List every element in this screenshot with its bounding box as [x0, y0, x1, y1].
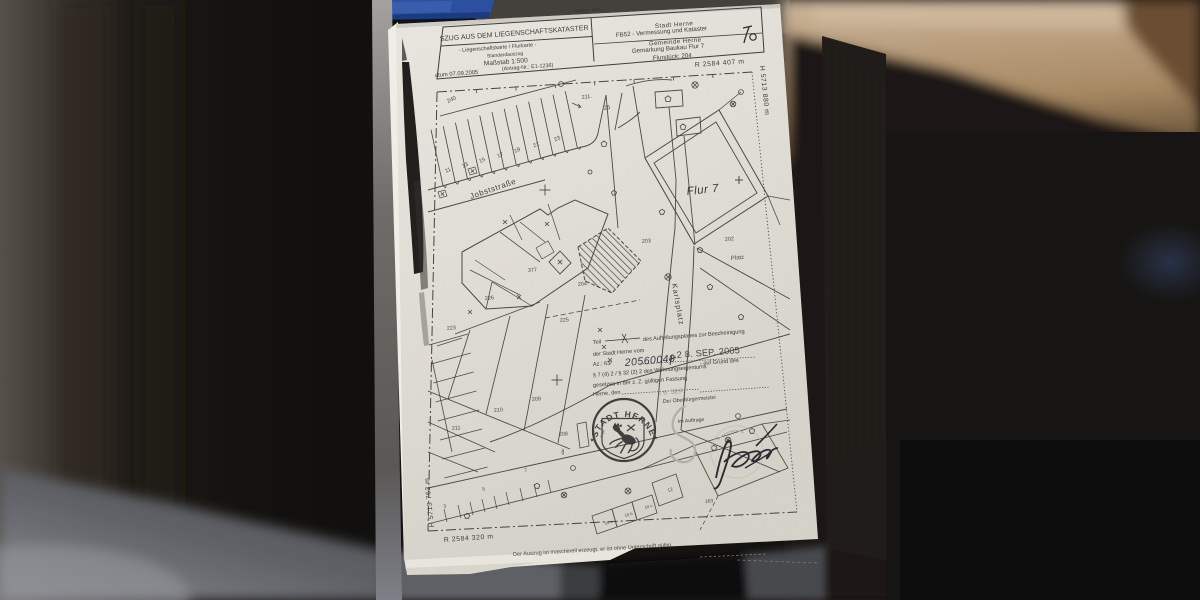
svg-text:223: 223	[447, 325, 456, 332]
svg-text:209: 209	[532, 396, 541, 403]
svg-text:202: 202	[725, 236, 734, 243]
svg-text:225: 225	[560, 317, 569, 324]
svg-text:211: 211	[452, 425, 461, 432]
svg-text:377: 377	[528, 267, 537, 274]
svg-text:Teil: Teil	[593, 339, 602, 346]
svg-text:208: 208	[559, 431, 568, 438]
svg-text:204: 204	[578, 281, 587, 288]
svg-text:Platz: Platz	[731, 255, 745, 262]
svg-text:226: 226	[485, 295, 494, 302]
svg-text:203: 203	[642, 238, 651, 245]
svg-text:163: 163	[705, 498, 714, 505]
svg-text:210: 210	[494, 407, 503, 414]
